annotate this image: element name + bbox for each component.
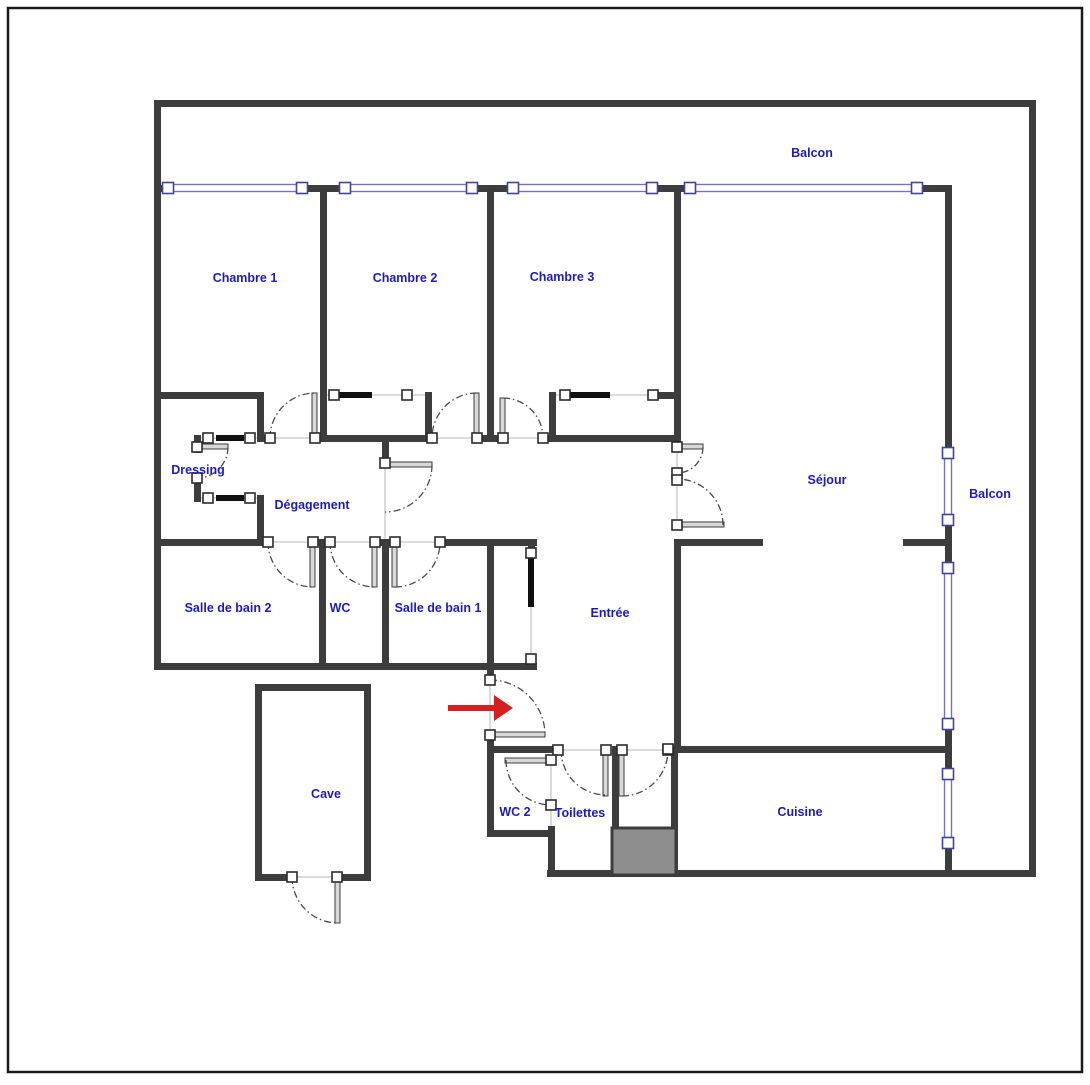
wall bbox=[154, 100, 1036, 107]
door-handle bbox=[553, 745, 563, 755]
door-swing-arc bbox=[270, 393, 315, 438]
floor-plan-svg: BalconChambre 1Chambre 2Chambre 3Dressin… bbox=[0, 0, 1090, 1080]
wall bbox=[154, 663, 537, 670]
room-label-degagement: Dégagement bbox=[274, 498, 350, 512]
utility-shaft bbox=[612, 828, 676, 875]
door-leaf bbox=[492, 732, 545, 737]
window-handle bbox=[297, 183, 308, 194]
window-handle bbox=[467, 183, 478, 194]
wall bbox=[320, 185, 327, 442]
floor-plan: BalconChambre 1Chambre 2Chambre 3Dressin… bbox=[0, 0, 1090, 1080]
wall bbox=[674, 539, 681, 752]
wall bbox=[1029, 100, 1036, 877]
door-leaf bbox=[679, 522, 724, 527]
entrance-arrow bbox=[494, 695, 513, 721]
room-label-wc-2: WC 2 bbox=[499, 805, 530, 819]
door-handle bbox=[485, 730, 495, 740]
closet-door-bar bbox=[528, 557, 534, 607]
window bbox=[945, 774, 952, 843]
door-leaf bbox=[474, 393, 479, 438]
door-leaf bbox=[619, 751, 624, 796]
room-label-salle-de-bain-1: Salle de bain 1 bbox=[395, 601, 482, 615]
room-label-sejour: Séjour bbox=[808, 473, 847, 487]
door-handle bbox=[203, 433, 213, 443]
wall bbox=[674, 539, 763, 546]
door-swing-arc bbox=[292, 877, 338, 923]
wall bbox=[549, 392, 556, 439]
wall bbox=[154, 392, 264, 399]
door-handle bbox=[526, 654, 536, 664]
door-handle bbox=[325, 537, 335, 547]
wall bbox=[668, 746, 952, 753]
door-swing-arc bbox=[506, 760, 551, 805]
door-handle bbox=[380, 458, 390, 468]
wall bbox=[543, 435, 681, 442]
room-label-dressing: Dressing bbox=[171, 463, 225, 477]
door-handle bbox=[370, 537, 380, 547]
window-handle bbox=[943, 563, 954, 574]
room-label-salle-de-bain-2: Salle de bain 2 bbox=[185, 601, 272, 615]
window-handle bbox=[912, 183, 923, 194]
window bbox=[345, 185, 472, 192]
wall bbox=[612, 746, 619, 832]
door-handle bbox=[617, 745, 627, 755]
door-handle bbox=[485, 675, 495, 685]
door-handle bbox=[245, 493, 255, 503]
door-handle bbox=[332, 872, 342, 882]
room-label-chambre-2: Chambre 2 bbox=[373, 271, 438, 285]
door-leaf bbox=[312, 393, 317, 438]
closet-door-bar bbox=[337, 392, 372, 398]
door-swing-arc bbox=[395, 542, 440, 587]
room-label-balcon-right: Balcon bbox=[969, 487, 1011, 501]
door-handle bbox=[310, 433, 320, 443]
window-handle bbox=[943, 515, 954, 526]
door-handle bbox=[308, 537, 318, 547]
door-handle bbox=[663, 744, 673, 754]
wall bbox=[945, 185, 952, 453]
wall bbox=[487, 746, 559, 753]
door-leaf bbox=[603, 751, 608, 796]
door-handle bbox=[672, 520, 682, 530]
window-handle bbox=[163, 183, 174, 194]
wall bbox=[364, 684, 371, 881]
door-handle bbox=[601, 745, 611, 755]
wall bbox=[257, 392, 264, 442]
window-handle bbox=[943, 838, 954, 849]
door-swing-arc bbox=[561, 750, 606, 795]
door-swing-arc bbox=[268, 542, 313, 587]
door-handle bbox=[672, 442, 682, 452]
door-swing-arc bbox=[677, 479, 723, 525]
door-swing-arc bbox=[432, 393, 477, 438]
door-leaf bbox=[335, 879, 340, 923]
door-swing-arc bbox=[385, 465, 432, 512]
window bbox=[690, 185, 917, 192]
door-handle bbox=[263, 537, 273, 547]
entrance-arrow-shaft bbox=[448, 705, 494, 711]
window bbox=[945, 453, 952, 520]
window-handle bbox=[340, 183, 351, 194]
door-leaf bbox=[392, 542, 397, 587]
door-leaf bbox=[310, 542, 315, 587]
door-leaf bbox=[199, 444, 228, 449]
door-handle bbox=[287, 872, 297, 882]
door-leaf bbox=[500, 398, 505, 438]
door-handle bbox=[672, 475, 682, 485]
window-handle bbox=[943, 769, 954, 780]
window bbox=[513, 185, 652, 192]
door-handle bbox=[427, 433, 437, 443]
door-handle bbox=[402, 390, 412, 400]
door-handle bbox=[435, 537, 445, 547]
window bbox=[168, 185, 302, 192]
door-handle bbox=[472, 433, 482, 443]
room-label-wc: WC bbox=[330, 601, 351, 615]
door-swing-arc bbox=[622, 750, 668, 796]
door-handle bbox=[245, 433, 255, 443]
wall bbox=[382, 539, 389, 670]
door-handle bbox=[538, 433, 548, 443]
room-label-chambre-1: Chambre 1 bbox=[213, 271, 278, 285]
wall bbox=[425, 392, 432, 439]
wall bbox=[255, 684, 371, 691]
door-handle bbox=[560, 390, 570, 400]
room-label-entree: Entrée bbox=[591, 606, 630, 620]
wall bbox=[315, 435, 432, 442]
room-label-toilettes: Toilettes bbox=[555, 806, 606, 820]
door-handle bbox=[648, 390, 658, 400]
door-swing-arc bbox=[503, 398, 543, 438]
door-handle bbox=[203, 493, 213, 503]
door-handle bbox=[546, 755, 556, 765]
door-handle bbox=[329, 390, 339, 400]
window-handle bbox=[647, 183, 658, 194]
room-label-balcon-top: Balcon bbox=[791, 146, 833, 160]
wall bbox=[319, 539, 326, 670]
door-leaf bbox=[372, 542, 377, 587]
window-handle bbox=[685, 183, 696, 194]
wall bbox=[487, 539, 494, 680]
wall bbox=[487, 830, 555, 837]
door-swing-arc bbox=[330, 542, 375, 587]
door-handle bbox=[526, 548, 536, 558]
wall bbox=[903, 539, 952, 546]
closet-door-bar bbox=[216, 435, 244, 441]
room-label-cuisine: Cuisine bbox=[777, 805, 822, 819]
wall bbox=[674, 185, 681, 448]
door-handle bbox=[498, 433, 508, 443]
door-leaf bbox=[505, 758, 551, 763]
wall bbox=[154, 539, 268, 546]
window bbox=[945, 568, 952, 724]
door-handle bbox=[192, 442, 202, 452]
closet-door-bar bbox=[570, 392, 610, 398]
room-label-chambre-3: Chambre 3 bbox=[530, 270, 595, 284]
wall bbox=[255, 684, 262, 881]
window-handle bbox=[943, 719, 954, 730]
wall bbox=[487, 185, 494, 442]
window-handle bbox=[508, 183, 519, 194]
door-handle bbox=[265, 433, 275, 443]
window-handle bbox=[943, 448, 954, 459]
door-leaf bbox=[388, 462, 432, 467]
room-label-cave: Cave bbox=[311, 787, 341, 801]
closet-door-bar bbox=[216, 495, 244, 501]
door-handle bbox=[390, 537, 400, 547]
